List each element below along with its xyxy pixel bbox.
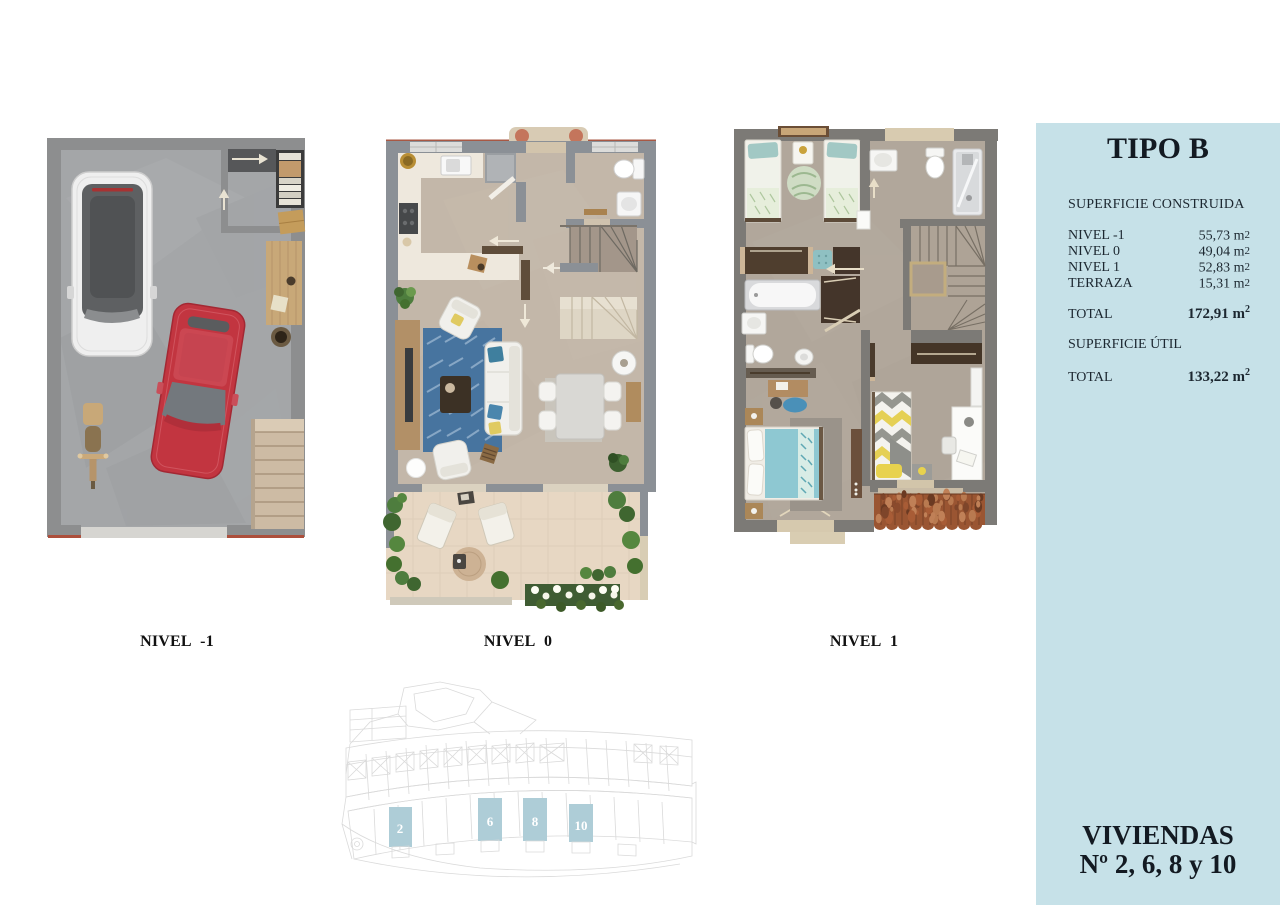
svg-text:10: 10 [575, 818, 588, 833]
svg-text:6: 6 [487, 814, 494, 829]
svg-text:2: 2 [397, 821, 404, 836]
svg-text:8: 8 [532, 814, 539, 829]
